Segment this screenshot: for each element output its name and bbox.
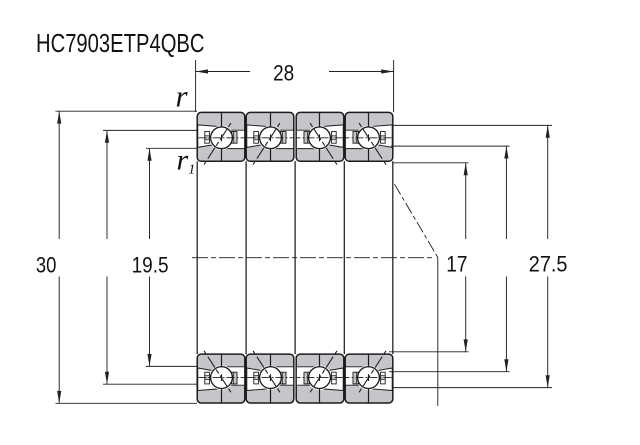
svg-text:17: 17 xyxy=(446,252,467,277)
svg-text:HC7903ETP4QBC: HC7903ETP4QBC xyxy=(36,28,205,58)
svg-text:30: 30 xyxy=(36,253,57,278)
svg-text:28: 28 xyxy=(273,60,294,85)
svg-text:27.5: 27.5 xyxy=(529,252,568,277)
svg-text:19.5: 19.5 xyxy=(132,253,169,278)
svg-text:r: r xyxy=(176,79,189,114)
